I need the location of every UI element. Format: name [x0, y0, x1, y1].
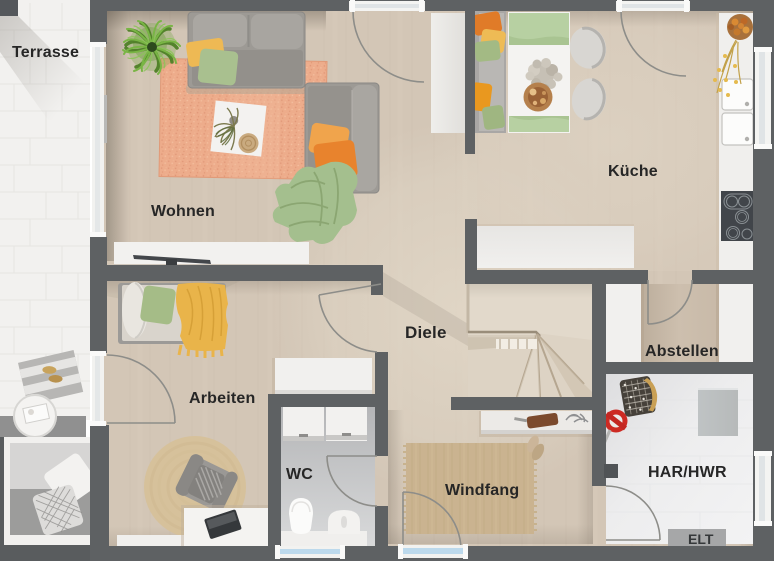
svg-text:ELT: ELT — [688, 531, 714, 547]
svg-text:Diele: Diele — [405, 323, 447, 342]
svg-text:HAR/HWR: HAR/HWR — [648, 464, 727, 481]
svg-text:Terrasse: Terrasse — [12, 44, 79, 61]
svg-text:Wohnen: Wohnen — [151, 203, 215, 220]
svg-text:Windfang: Windfang — [445, 482, 519, 499]
svg-text:WC: WC — [286, 466, 313, 483]
svg-text:Arbeiten: Arbeiten — [189, 390, 256, 407]
svg-text:Abstellen: Abstellen — [645, 343, 719, 360]
svg-text:Küche: Küche — [608, 163, 658, 180]
